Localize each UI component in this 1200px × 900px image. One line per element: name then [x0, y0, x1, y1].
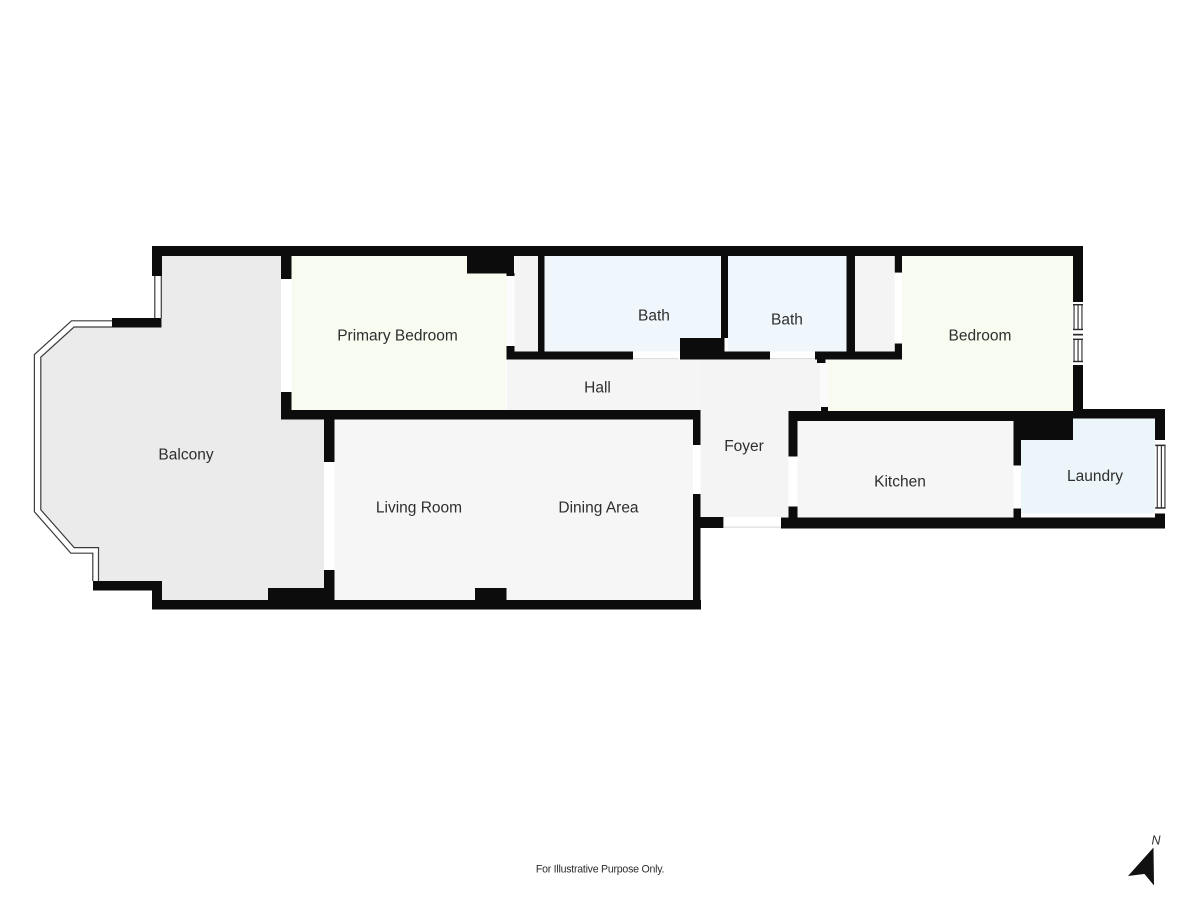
- svg-text:For Illustrative Purpose Only.: For Illustrative Purpose Only.: [536, 864, 664, 876]
- svg-text:Bath: Bath: [638, 308, 670, 325]
- svg-text:Foyer: Foyer: [724, 438, 764, 455]
- svg-text:Balcony: Balcony: [158, 447, 213, 464]
- svg-text:Primary Bedroom: Primary Bedroom: [337, 328, 458, 345]
- svg-text:Kitchen: Kitchen: [874, 474, 926, 491]
- svg-text:N: N: [1151, 834, 1161, 848]
- svg-text:Laundry: Laundry: [1067, 468, 1123, 485]
- svg-text:Dining Area: Dining Area: [558, 500, 639, 517]
- svg-text:Bedroom: Bedroom: [949, 328, 1012, 345]
- svg-text:Living Room: Living Room: [376, 500, 462, 517]
- svg-text:Hall: Hall: [584, 380, 611, 397]
- svg-text:Bath: Bath: [771, 312, 803, 329]
